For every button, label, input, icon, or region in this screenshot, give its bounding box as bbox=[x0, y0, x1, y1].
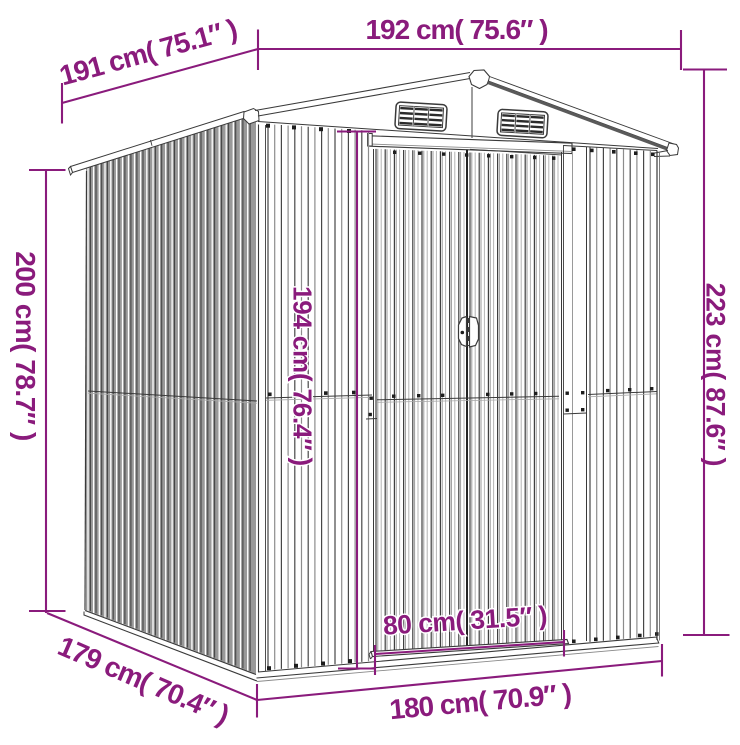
svg-text:194 cm( 76.4″ ): 194 cm( 76.4″ ) bbox=[288, 286, 318, 466]
svg-text:200 cm( 78.7″ ): 200 cm( 78.7″ ) bbox=[10, 251, 41, 441]
svg-text:192 cm( 75.6″ ): 192 cm( 75.6″ ) bbox=[365, 14, 547, 45]
svg-text:223 cm( 87.6″ ): 223 cm( 87.6″ ) bbox=[701, 283, 731, 467]
